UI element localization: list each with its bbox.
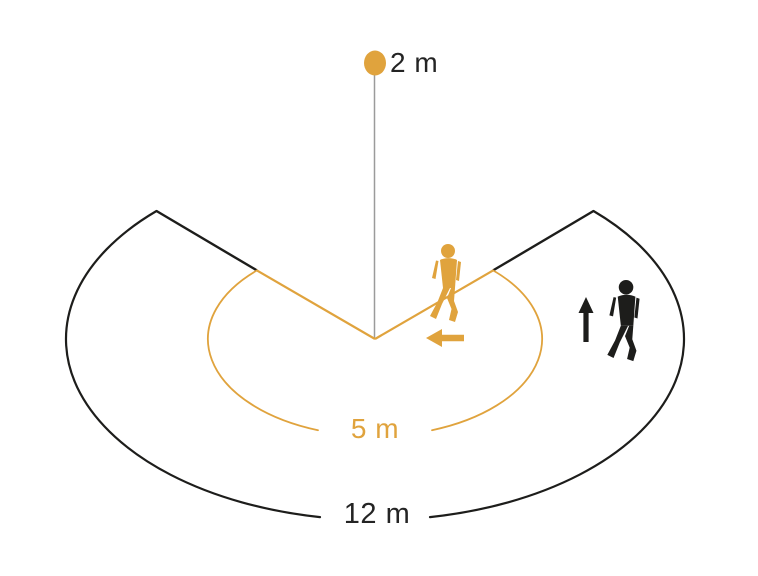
arrow-left-icon [426, 329, 464, 347]
inner-range-arc-left [208, 270, 318, 430]
person-arm-back [456, 261, 461, 281]
sector-edge-left-inner [257, 270, 375, 339]
arrow-up-icon [579, 297, 594, 342]
person-leg-back [447, 288, 458, 322]
inner-range-label: 5 m [351, 414, 399, 444]
walking-person-radial-icon [607, 280, 639, 361]
coverage-diagram: 2 m 5 m 12 m [0, 0, 758, 576]
sector-edge-right-inner [375, 270, 493, 339]
person-leg-front [607, 326, 628, 358]
mounting-height-label: 2 m [390, 48, 438, 78]
sector-edge-left-outer [157, 211, 257, 270]
person-leg-front [430, 288, 450, 319]
diagram-canvas [0, 0, 758, 576]
outer-range-label: 12 m [344, 499, 410, 529]
outer-range-arc-left [66, 211, 320, 517]
sector-edge-right-outer [493, 211, 593, 270]
person-head [441, 244, 455, 258]
person-torso [440, 258, 457, 288]
person-head [619, 280, 634, 295]
person-arm-front [609, 297, 616, 316]
person-arm-front [432, 261, 439, 280]
person-arm-back [634, 298, 639, 319]
sensor-dot-icon [364, 51, 386, 76]
walking-person-tangential-icon [430, 244, 461, 322]
person-torso [618, 295, 636, 326]
outer-range-arc-right [430, 211, 684, 517]
person-leg-back [625, 326, 636, 361]
